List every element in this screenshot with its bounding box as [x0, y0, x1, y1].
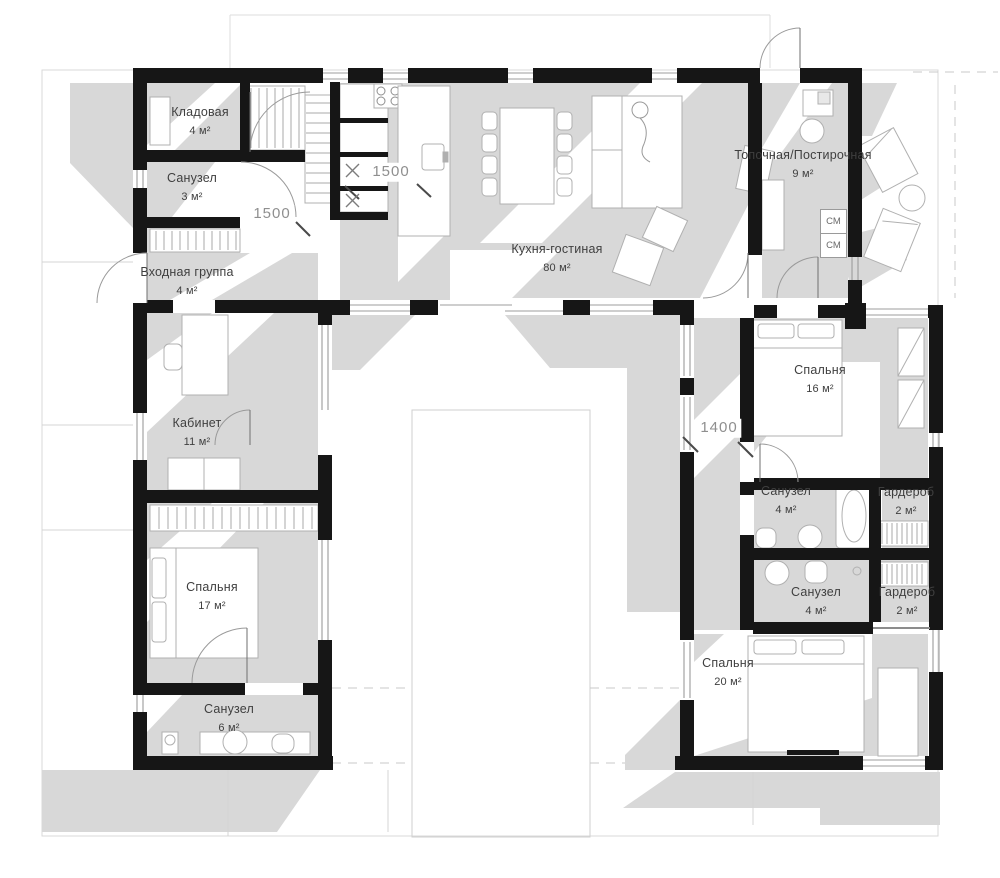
laundry-counter — [762, 180, 784, 250]
bed — [748, 636, 864, 752]
floor-plan: Кладовая4 м² Санузел3 м² Входная группа4… — [0, 0, 1000, 878]
bedroom20-wardrobe — [878, 668, 918, 756]
door-arc — [760, 28, 800, 68]
toilet-icon — [756, 528, 776, 548]
leader-tick — [296, 222, 310, 236]
wardrobe-rail — [877, 521, 928, 546]
outdoor-table — [899, 185, 925, 211]
dimension-label: 1400 — [696, 419, 741, 438]
patio-outline — [412, 410, 590, 837]
room-label-bedroom-16: Спальня16 м² — [794, 364, 846, 395]
office-sofa — [168, 458, 240, 490]
room-label-wardrobe-b: Гардероб2 м² — [879, 586, 936, 617]
wardrobe-hatch-tall — [305, 95, 333, 203]
sink-icon — [765, 561, 789, 585]
sink-icon — [223, 730, 247, 754]
washing-machine-box: СМ — [820, 209, 847, 234]
entry-closet — [150, 229, 240, 252]
kitchen-island — [398, 86, 450, 236]
bathtub-icon — [836, 484, 872, 548]
door-arc — [760, 444, 798, 482]
room-label-wc-4a: Санузел4 м² — [761, 485, 811, 516]
bedroom17-closet — [150, 505, 318, 531]
room-label-wardrobe-a: Гардероб2 м² — [878, 486, 935, 517]
room-label-storage: Кладовая4 м² — [171, 106, 229, 137]
office-chair — [164, 344, 182, 370]
tv-console — [787, 750, 839, 755]
room-label-wc-3: Санузел3 м² — [167, 172, 217, 203]
toilet-icon — [805, 561, 827, 583]
room-label-boiler-laundry: Топочная/Постирочная9 м² — [734, 149, 871, 180]
sofa — [592, 96, 682, 208]
room-label-bedroom-20: Спальня20 м² — [702, 657, 754, 688]
floor-plan-drawing — [0, 0, 1000, 878]
shelf — [150, 97, 170, 145]
wardrobe-hatch-top — [243, 86, 305, 150]
toilet-icon — [272, 734, 294, 753]
sink-icon — [422, 144, 444, 170]
room-label-wc-4b: Санузел4 м² — [791, 586, 841, 617]
wardrobe-rail — [877, 562, 928, 586]
room-label-bedroom-17: Спальня17 м² — [186, 581, 238, 612]
room-label-office: Кабинет11 м² — [173, 417, 222, 448]
dimension-label: 1500 — [368, 163, 413, 182]
room-label-entry: Входная группа4 м² — [140, 266, 233, 297]
room-label-kitchen-living: Кухня-гостиная80 м² — [511, 243, 602, 274]
dimension-label: 1500 — [249, 205, 294, 224]
room-label-wc-6: Санузел6 м² — [204, 703, 254, 734]
washing-machine-box: СМ — [820, 233, 847, 258]
leader-tick — [738, 442, 753, 457]
sink-icon — [798, 525, 822, 549]
